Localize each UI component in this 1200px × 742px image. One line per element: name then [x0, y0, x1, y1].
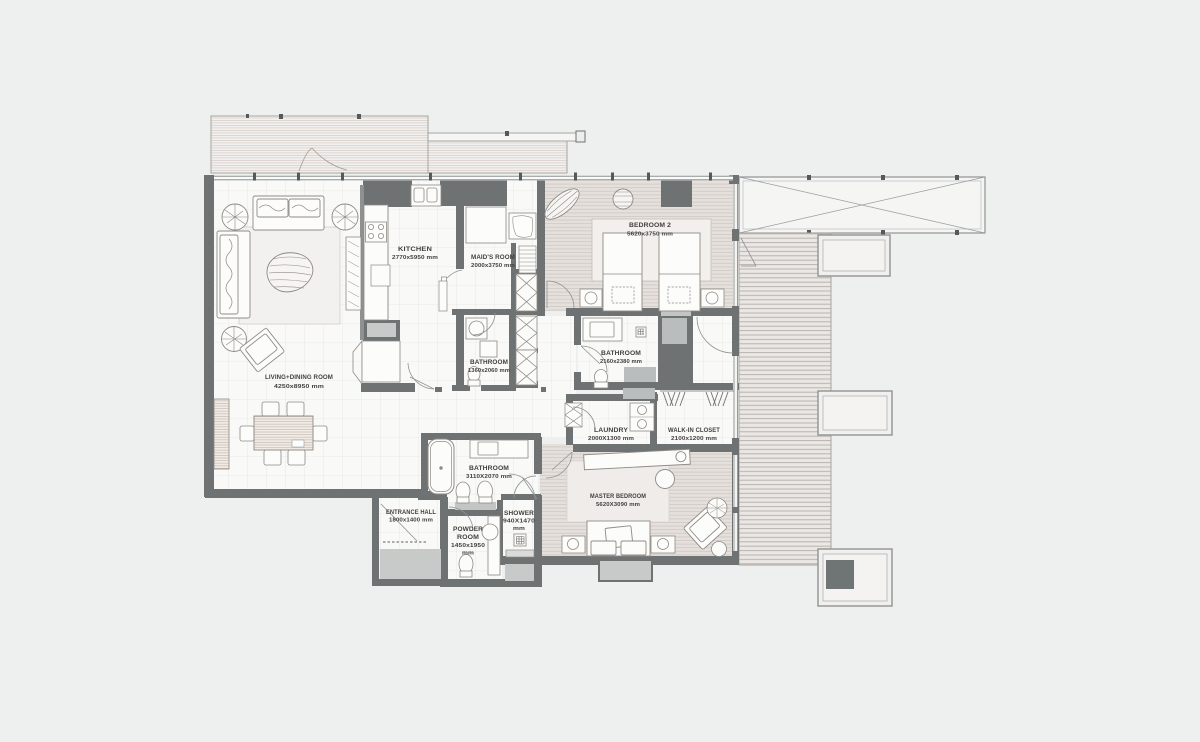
- svg-text:WALK-IN CLOSET: WALK-IN CLOSET: [668, 428, 720, 434]
- svg-text:3110X2070 mm: 3110X2070 mm: [466, 474, 512, 480]
- svg-text:2100x1200 mm: 2100x1200 mm: [671, 436, 717, 442]
- svg-text:2000x3750 mm: 2000x3750 mm: [471, 263, 515, 269]
- svg-text:mm: mm: [513, 526, 525, 532]
- svg-text:POWDER: POWDER: [453, 527, 484, 533]
- svg-text:ROOM: ROOM: [457, 535, 479, 541]
- svg-text:BATHROOM: BATHROOM: [469, 466, 509, 472]
- svg-text:2770x5950 mm: 2770x5950 mm: [392, 255, 438, 261]
- svg-text:MAID'S ROOM: MAID'S ROOM: [471, 255, 515, 261]
- svg-text:BATHROOM: BATHROOM: [601, 351, 641, 357]
- svg-text:MASTER BEDROOM: MASTER BEDROOM: [590, 494, 646, 500]
- svg-text:BEDROOM 2: BEDROOM 2: [629, 223, 672, 229]
- svg-text:1360x2060 mm: 1360x2060 mm: [468, 368, 510, 374]
- svg-text:LAUNDRY: LAUNDRY: [594, 428, 628, 434]
- svg-text:mm: mm: [462, 551, 474, 557]
- svg-text:4250x8950 mm: 4250x8950 mm: [274, 384, 324, 390]
- svg-text:940X1470: 940X1470: [503, 519, 535, 525]
- svg-text:ENTRANCE HALL: ENTRANCE HALL: [386, 510, 436, 516]
- svg-text:1800x1400 mm: 1800x1400 mm: [389, 518, 433, 524]
- svg-text:1450x1950: 1450x1950: [451, 543, 485, 549]
- svg-text:KITCHEN: KITCHEN: [398, 247, 432, 253]
- svg-text:SHOWER: SHOWER: [504, 511, 535, 517]
- svg-text:LIVING+DINING ROOM: LIVING+DINING ROOM: [265, 375, 333, 381]
- svg-text:2160x2380 mm: 2160x2380 mm: [600, 359, 642, 365]
- svg-text:BATHROOM: BATHROOM: [470, 360, 508, 366]
- svg-text:5620x3750 mm: 5620x3750 mm: [627, 232, 673, 238]
- svg-text:5620X3090 mm: 5620X3090 mm: [596, 502, 640, 508]
- svg-text:2000X1300 mm: 2000X1300 mm: [588, 436, 634, 442]
